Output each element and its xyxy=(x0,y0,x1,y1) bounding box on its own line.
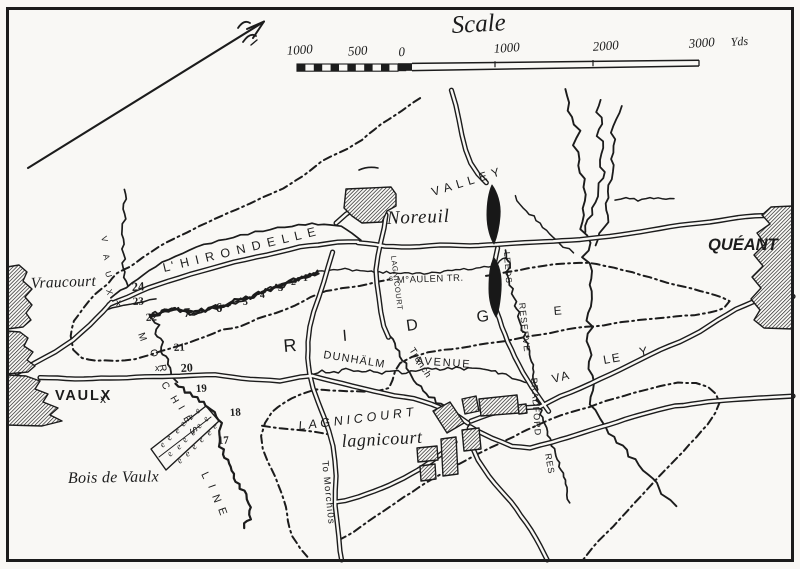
svg-text:2000: 2000 xyxy=(592,37,619,54)
svg-text:x: x xyxy=(100,392,106,406)
svg-text:5: 5 xyxy=(243,297,249,308)
svg-text:18: 18 xyxy=(230,406,242,419)
svg-text:4: 4 xyxy=(260,290,266,301)
svg-text:QUÉANT: QUÉANT xyxy=(708,235,780,254)
svg-text:17: 17 xyxy=(218,434,230,447)
svg-text:Yds: Yds xyxy=(730,34,749,49)
svg-text:R: R xyxy=(283,335,298,356)
svg-text:19: 19 xyxy=(196,382,208,395)
svg-text:G: G xyxy=(476,308,490,326)
svg-text:23: 23 xyxy=(133,295,145,308)
svg-text:M°AULEN TR.: M°AULEN TR. xyxy=(397,273,464,286)
svg-text:500: 500 xyxy=(347,42,368,58)
svg-text:7: 7 xyxy=(183,305,191,320)
svg-text:x: x xyxy=(116,298,121,309)
svg-text:lagnicourt: lagnicourt xyxy=(341,427,423,451)
svg-text:Bois de Vaulx: Bois de Vaulx xyxy=(68,468,159,487)
svg-text:D: D xyxy=(405,317,419,335)
svg-text:Scale: Scale xyxy=(451,9,506,39)
svg-text:3000: 3000 xyxy=(687,34,715,51)
svg-text:Vraucourt: Vraucourt xyxy=(31,273,97,292)
svg-text:2: 2 xyxy=(291,277,297,288)
svg-text:24: 24 xyxy=(131,279,145,294)
svg-text:Noreuil: Noreuil xyxy=(385,206,450,229)
svg-text:1: 1 xyxy=(303,273,309,284)
svg-text:s: s xyxy=(389,274,393,283)
svg-text:6: 6 xyxy=(215,300,223,315)
svg-text:x: x xyxy=(155,363,160,373)
svg-text:22: 22 xyxy=(146,311,158,324)
svg-text:1000: 1000 xyxy=(493,39,520,56)
svg-text:20: 20 xyxy=(180,360,193,375)
svg-text:21: 21 xyxy=(174,341,186,354)
svg-text:1000: 1000 xyxy=(286,41,313,58)
svg-text:E: E xyxy=(553,303,562,318)
